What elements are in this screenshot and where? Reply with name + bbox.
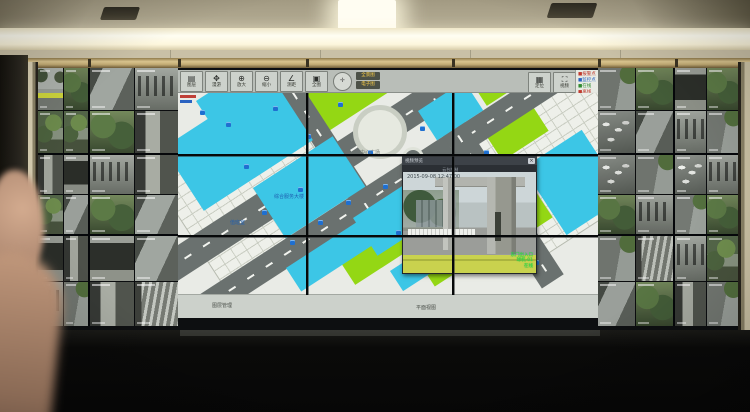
live-video-feed: 2015-09-08 12:47:00 东门出入口球机-01在线	[403, 172, 536, 273]
camera-feed-garden	[64, 111, 89, 153]
camera-feed-facade	[636, 195, 673, 234]
video-popup-titlebar[interactable]: 视频预览 ×	[402, 156, 537, 165]
cctv-monitor-2	[675, 68, 738, 153]
video-gate-column-right	[487, 177, 516, 254]
screen-glow-reflection	[180, 330, 600, 336]
camera-feed-garage	[90, 236, 134, 281]
video-popup-title: 视频预览	[405, 158, 423, 164]
tool-icon: ✥	[213, 75, 220, 83]
map-camera-icon[interactable]	[383, 185, 388, 189]
monitor-bezel	[306, 93, 309, 295]
camera-feed-road	[598, 68, 635, 110]
camera-feed-facade	[675, 236, 706, 281]
facade-windows	[677, 119, 703, 139]
camera-feed-street	[598, 282, 635, 327]
tool-label: 缩小	[262, 83, 271, 88]
camera-feed-trees	[636, 68, 673, 110]
camera-feed-alley	[675, 282, 706, 327]
camera-feed-garden	[707, 236, 738, 281]
map-view-buttons: 全景图电子图	[356, 72, 380, 89]
tool-label: 图层	[187, 83, 196, 88]
video-popup-window[interactable]: 视频预览 × 云台控制 2015-09-08 1	[402, 156, 537, 274]
map-camera-icon[interactable]	[273, 107, 278, 111]
camera-feed-trees	[707, 195, 738, 234]
monitor-bezel	[178, 154, 598, 157]
map-tool-放大[interactable]: ⊕放大	[230, 71, 253, 92]
camera-feed-street	[90, 68, 134, 110]
status-left-label: 图层管理	[212, 302, 232, 309]
camera-feed-trees	[90, 111, 134, 153]
map-tool-全图[interactable]: ▣全图	[305, 71, 328, 92]
camera-feed-garden	[38, 111, 63, 153]
camera-feed-facade	[135, 68, 179, 110]
trim-notch	[598, 59, 601, 67]
map-camera-icon[interactable]	[318, 221, 323, 225]
camera-feed-road	[707, 111, 738, 153]
osd-line: 在线	[511, 264, 534, 270]
camera-feed-trees	[64, 68, 89, 110]
facade-windows	[709, 162, 735, 181]
map-tool-缩小[interactable]: ⊖缩小	[255, 71, 278, 92]
cctv-monitor-1	[38, 68, 88, 153]
camera-feed-street	[636, 111, 673, 153]
camera-feed-alley	[90, 282, 134, 327]
map-label: 综合服务大楼	[274, 195, 304, 200]
facade-windows	[138, 76, 175, 96]
camera-feed-alley	[64, 236, 89, 281]
tool-icon: ∠	[288, 75, 295, 83]
map-camera-icon[interactable]	[346, 201, 351, 205]
cctv-monitor-4	[90, 155, 178, 234]
camera-feed-trees	[90, 195, 134, 234]
map-toolbar-right: ▦定位⛶视频	[526, 71, 576, 93]
map-view-button[interactable]: 电子图	[356, 81, 380, 89]
video-wall-frame-right	[738, 62, 750, 330]
camera-feed-road	[64, 282, 89, 327]
map-label: 值班室	[230, 221, 245, 226]
trim-notch	[452, 59, 455, 67]
map-camera-icon[interactable]	[262, 211, 267, 215]
camera-feed-parking	[598, 155, 635, 194]
cctv-monitor-2	[90, 68, 178, 153]
map-camera-icon[interactable]	[338, 103, 343, 107]
cctv-monitor-5	[598, 236, 673, 326]
camera-feed-trees	[598, 195, 635, 234]
monitor-bezel	[452, 93, 455, 295]
map-pan-control[interactable]: ✛	[333, 72, 352, 91]
cctv-monitor-1	[598, 68, 673, 153]
tool-icon: ⊕	[238, 75, 245, 83]
camera-feed-garage	[675, 68, 706, 110]
ceiling-vent-left	[100, 7, 140, 20]
cctv-monitor-4	[675, 155, 738, 234]
gis-map-window: ▤图层✥漫游⊕放大⊖缩小∠测距▣全图 ✛ 全景图电子图 ▦定位⛶视频 ■报警点■…	[178, 70, 598, 318]
monitor-bezel	[178, 235, 598, 238]
trim-notch	[88, 59, 91, 67]
camera-feed-road	[598, 236, 635, 281]
map-camera-icon[interactable]	[420, 127, 425, 131]
camera-feed-parking	[598, 111, 635, 153]
camera-feed-entrance-banner	[38, 68, 63, 110]
tool-label: 放大	[237, 83, 246, 88]
wall-lower-cabinet	[0, 330, 750, 412]
camera-feed-street	[64, 195, 89, 234]
cctv-monitor-3	[598, 155, 673, 234]
trim-notch	[178, 59, 181, 67]
camera-feed-trees	[636, 282, 673, 327]
map-camera-icon[interactable]	[298, 188, 303, 192]
camera-feed-alley	[135, 155, 179, 194]
map-camera-icon[interactable]	[290, 241, 295, 245]
map-toolbar: ▤图层✥漫游⊕放大⊖缩小∠测距▣全图 ✛ 全景图电子图 ▦定位⛶视频 ■报警点■…	[178, 70, 598, 93]
camera-feed-road	[707, 282, 738, 327]
video-osd-text: 东门出入口球机-01在线	[511, 253, 534, 270]
map-tool-定位[interactable]: ▦定位	[528, 72, 551, 93]
map-tool-漫游[interactable]: ✥漫游	[205, 71, 228, 92]
trim-notch	[306, 59, 309, 67]
trim-notch	[675, 59, 678, 67]
map-camera-icon[interactable]	[244, 165, 249, 169]
cctv-monitor-6	[675, 236, 738, 326]
map-status-bar: 图层管理 平面视图	[178, 294, 598, 318]
camera-feed-street	[135, 195, 179, 234]
camera-feed-alley	[135, 111, 179, 153]
camera-feed-garage	[64, 155, 89, 194]
map-tool-测距[interactable]: ∠测距	[280, 71, 303, 92]
map-view-button[interactable]: 全景图	[356, 72, 380, 80]
control-room-photo: ▤图层✥漫游⊕放大⊖缩小∠测距▣全图 ✛ 全景图电子图 ▦定位⛶视频 ■报警点■…	[0, 0, 750, 412]
video-popup-toolbar[interactable]: 云台控制	[402, 165, 537, 172]
map-toolbar-buttons: ▤图层✥漫游⊕放大⊖缩小∠测距▣全图	[178, 70, 328, 92]
camera-feed-street	[135, 236, 179, 281]
camera-feed-facade	[707, 155, 738, 194]
video-wall-top-trim	[26, 58, 750, 68]
camera-feed-alley	[38, 155, 63, 194]
camera-feed-road	[636, 155, 673, 194]
facade-windows	[93, 162, 130, 181]
camera-feed-stairs	[636, 236, 673, 281]
tool-label: 测距	[287, 83, 296, 88]
tool-label: 漫游	[212, 83, 221, 88]
camera-feed-stairs	[135, 282, 179, 327]
tool-icon: ▤	[188, 75, 196, 83]
camera-feed-facade	[675, 111, 706, 153]
tool-label: 全图	[312, 83, 321, 88]
map-canvas[interactable]: 大门中心广场综合服务大楼停车场值班室 视频预览 × 云台控制	[178, 93, 598, 295]
camera-feed-road	[675, 195, 706, 234]
tool-icon: ▣	[313, 75, 321, 83]
camera-feed-trees	[707, 68, 738, 110]
ceiling-vent-right	[547, 3, 598, 18]
facade-windows	[677, 244, 703, 265]
status-center-label: 平面视图	[416, 304, 436, 311]
cove-light-strip	[0, 28, 750, 50]
facade-windows	[639, 202, 670, 221]
map-camera-icon[interactable]	[226, 123, 231, 127]
cctv-monitor-6	[90, 236, 178, 326]
map-tool-视频[interactable]: ⛶视频	[553, 72, 576, 93]
close-icon[interactable]: ×	[528, 158, 535, 164]
map-scale-widget	[180, 93, 200, 103]
camera-wall-right	[598, 68, 738, 326]
map-tool-图层[interactable]: ▤图层	[180, 71, 203, 92]
tool-icon: ⊖	[263, 75, 270, 83]
map-camera-icon[interactable]	[200, 111, 205, 115]
cctv-monitor-3	[38, 155, 88, 234]
camera-feed-parking	[675, 155, 706, 194]
camera-feed-facade	[90, 155, 134, 194]
